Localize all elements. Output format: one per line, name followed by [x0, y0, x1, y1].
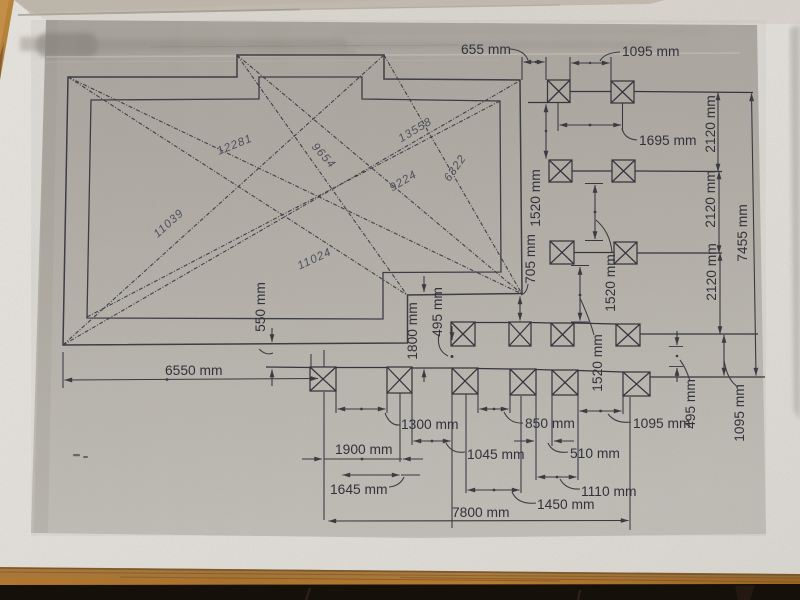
svg-text:705 mm: 705 mm [523, 234, 538, 284]
svg-text:1800 mm: 1800 mm [405, 302, 420, 360]
svg-text:1450 mm: 1450 mm [537, 497, 595, 512]
svg-text:1695 mm: 1695 mm [639, 133, 697, 148]
svg-text:1095 mm: 1095 mm [732, 384, 747, 442]
svg-text:2120 mm: 2120 mm [703, 95, 718, 153]
svg-text:550 mm: 550 mm [253, 282, 268, 332]
svg-text:2120 mm: 2120 mm [704, 243, 719, 301]
svg-text:6550 mm: 6550 mm [165, 363, 223, 378]
svg-text:495 mm: 495 mm [683, 379, 698, 429]
svg-text:1520 mm: 1520 mm [603, 254, 618, 312]
svg-text:655 mm: 655 mm [461, 42, 511, 57]
svg-text:510 mm: 510 mm [570, 446, 620, 461]
svg-text:1045 mm: 1045 mm [467, 447, 525, 462]
svg-text:1520 mm: 1520 mm [590, 334, 605, 392]
svg-text:7800 mm: 7800 mm [452, 505, 510, 520]
svg-text:1095 mm: 1095 mm [622, 44, 680, 59]
svg-text:1095 mm: 1095 mm [633, 416, 691, 431]
svg-text:850 mm: 850 mm [525, 416, 575, 431]
svg-text:1645 mm: 1645 mm [330, 482, 388, 497]
svg-text:7455 mm: 7455 mm [735, 204, 750, 262]
svg-text:1300 mm: 1300 mm [401, 417, 459, 432]
svg-text:495 mm: 495 mm [430, 287, 445, 337]
svg-text:1900 mm: 1900 mm [335, 442, 393, 457]
svg-text:2120 mm: 2120 mm [703, 170, 718, 228]
svg-text:1520 mm: 1520 mm [528, 169, 543, 227]
